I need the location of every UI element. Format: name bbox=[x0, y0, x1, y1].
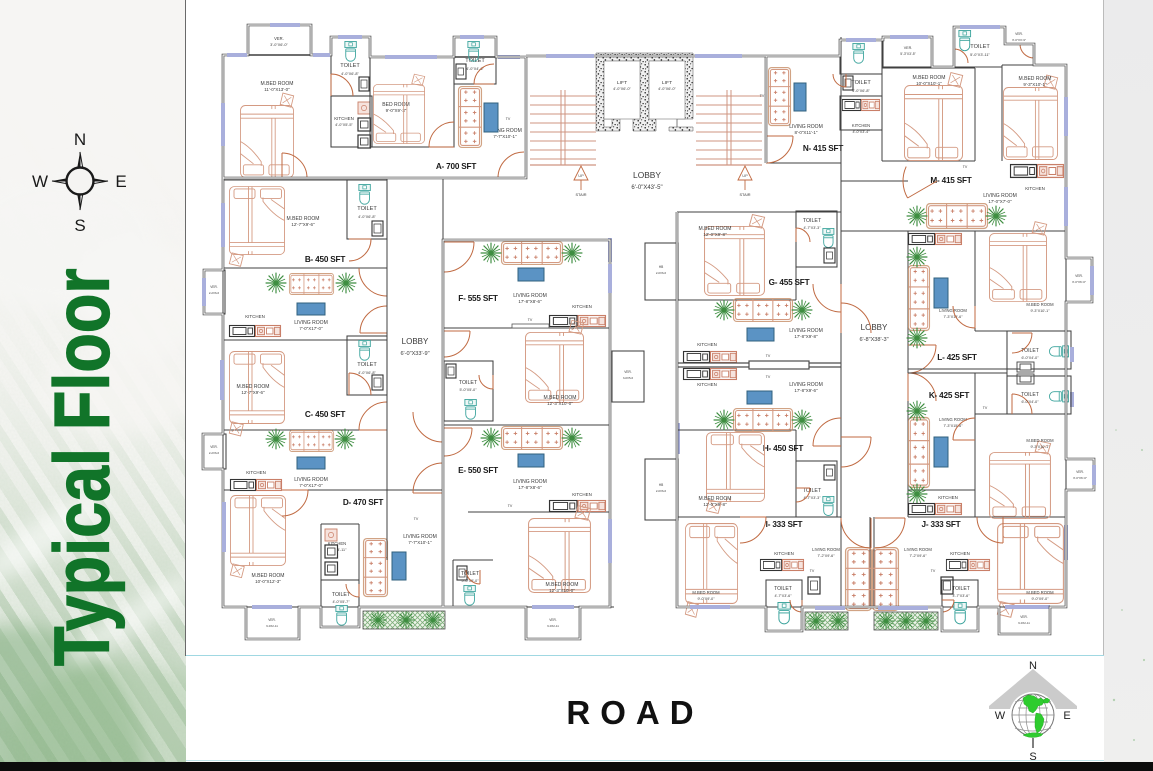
svg-text:LIVING ROOM: LIVING ROOM bbox=[904, 547, 932, 552]
svg-text:4'-7"X3'-6": 4'-7"X3'-6" bbox=[953, 594, 971, 598]
svg-text:VER.: VER. bbox=[624, 370, 632, 374]
svg-text:G- 455 SFT: G- 455 SFT bbox=[769, 278, 810, 287]
svg-text:KITCHEN: KITCHEN bbox=[852, 123, 870, 128]
svg-text:VER.: VER. bbox=[1015, 32, 1023, 36]
svg-text:LOBBY: LOBBY bbox=[402, 337, 429, 346]
svg-text:4'-0"X5'-7": 4'-0"X5'-7" bbox=[333, 600, 351, 604]
svg-text:STAIR: STAIR bbox=[740, 193, 751, 197]
svg-text:KITCHEN: KITCHEN bbox=[1025, 186, 1045, 191]
svg-text:12'-7"X9'-6": 12'-7"X9'-6" bbox=[291, 222, 315, 227]
svg-text:M.BED ROOM: M.BED ROOM bbox=[1026, 590, 1054, 595]
svg-text:UP: UP bbox=[742, 173, 748, 178]
svg-text:4'-0"X5'-5": 4'-0"X5'-5" bbox=[335, 123, 353, 127]
svg-text:17'-8"X8'-6": 17'-8"X8'-6" bbox=[518, 299, 542, 304]
svg-text:L- 425 SFT: L- 425 SFT bbox=[937, 353, 977, 362]
svg-text:2-2X6-6: 2-2X6-6 bbox=[209, 451, 220, 455]
svg-text:KITCHEN: KITCHEN bbox=[572, 304, 592, 309]
svg-text:D- 470 SFT: D- 470 SFT bbox=[343, 498, 384, 507]
svg-text:E: E bbox=[1063, 710, 1070, 722]
svg-text:VER.: VER. bbox=[1076, 470, 1084, 474]
svg-text:KITCHEN: KITCHEN bbox=[938, 495, 958, 500]
svg-text:LIVING ROOM: LIVING ROOM bbox=[812, 547, 840, 552]
svg-text:TV: TV bbox=[810, 569, 815, 573]
svg-text:17'-8"X8'-6": 17'-8"X8'-6" bbox=[518, 485, 542, 490]
svg-text:4'-7"X3'-6": 4'-7"X3'-6" bbox=[775, 594, 793, 598]
svg-text:TOILET: TOILET bbox=[1021, 392, 1039, 398]
svg-text:KITCHEN: KITCHEN bbox=[697, 382, 717, 387]
svg-text:10'-0"X10'-1": 10'-0"X10'-1" bbox=[916, 81, 942, 86]
svg-text:7'-3"X15'-6": 7'-3"X15'-6" bbox=[943, 424, 963, 428]
svg-text:9'-3"X10'-1": 9'-3"X10'-1" bbox=[1030, 309, 1050, 313]
svg-text:TOILET: TOILET bbox=[774, 586, 792, 592]
svg-text:VER.: VER. bbox=[549, 618, 557, 622]
svg-text:3'-0"X6'-0": 3'-0"X6'-0" bbox=[1072, 280, 1086, 284]
svg-text:E- 550 SFT: E- 550 SFT bbox=[458, 466, 498, 475]
svg-text:TOILET: TOILET bbox=[851, 80, 871, 86]
svg-text:M- 415 SFT: M- 415 SFT bbox=[930, 176, 971, 185]
svg-text:TV: TV bbox=[528, 318, 533, 322]
svg-text:Typical Floor: Typical Floor bbox=[39, 268, 126, 666]
svg-text:STAIR: STAIR bbox=[576, 193, 587, 197]
svg-text:B- 450 SFT: B- 450 SFT bbox=[305, 255, 346, 264]
svg-text:TOILET: TOILET bbox=[357, 206, 377, 212]
svg-text:9'-3"X10'-1": 9'-3"X10'-1" bbox=[1023, 82, 1047, 87]
svg-text:K- 425 SFT: K- 425 SFT bbox=[929, 391, 970, 400]
svg-text:TV: TV bbox=[508, 504, 513, 508]
svg-text:N- 415 SFT: N- 415 SFT bbox=[803, 144, 844, 153]
svg-text:9'-0"X9'-0": 9'-0"X9'-0" bbox=[698, 597, 716, 601]
svg-text:12'-0"X9'-8": 12'-0"X9'-8" bbox=[703, 232, 727, 237]
svg-text:TOILET: TOILET bbox=[970, 44, 990, 50]
svg-text:2-0X6-6: 2-0X6-6 bbox=[656, 271, 667, 275]
svg-text:8'-0"X11'-1": 8'-0"X11'-1" bbox=[795, 130, 818, 135]
svg-text:4'-0"X3'-4": 4'-0"X3'-4" bbox=[853, 130, 871, 134]
svg-text:KITCHEN: KITCHEN bbox=[950, 551, 970, 556]
svg-text:7'-0"X17'-0": 7'-0"X17'-0" bbox=[299, 483, 323, 488]
svg-text:4'-0"X6'-0": 4'-0"X6'-0" bbox=[658, 87, 676, 91]
svg-text:3'-0"X6'-0": 3'-0"X6'-0" bbox=[1073, 476, 1087, 480]
svg-text:11'-0"X13'-0": 11'-0"X13'-0" bbox=[264, 87, 290, 92]
svg-text:7'-7"X10'-1": 7'-7"X10'-1" bbox=[493, 134, 517, 139]
svg-text:KITCHEN: KITCHEN bbox=[245, 314, 265, 319]
svg-text:4'-0"X6'-0": 4'-0"X6'-0" bbox=[613, 87, 631, 91]
svg-text:C- 450 SFT: C- 450 SFT bbox=[305, 410, 346, 419]
svg-text:TOILET: TOILET bbox=[340, 63, 360, 69]
svg-text:4'-0"X6'-8": 4'-0"X6'-8" bbox=[341, 72, 359, 76]
svg-text:M.BED ROOM: M.BED ROOM bbox=[1026, 438, 1054, 443]
svg-text:17'-0"X7'-0": 17'-0"X7'-0" bbox=[988, 199, 1012, 204]
svg-text:TV: TV bbox=[983, 406, 988, 410]
svg-text:TOILET: TOILET bbox=[357, 362, 377, 368]
svg-text:17'-8"X9'-6": 17'-8"X9'-6" bbox=[794, 388, 818, 393]
svg-text:6'-0"X43'-5": 6'-0"X43'-5" bbox=[631, 185, 662, 191]
svg-text:12'-3"X10'-0": 12'-3"X10'-0" bbox=[549, 588, 575, 593]
svg-text:UP: UP bbox=[578, 173, 584, 178]
svg-text:KITCHEN: KITCHEN bbox=[334, 116, 354, 121]
svg-text:LOBBY: LOBBY bbox=[861, 323, 888, 332]
svg-text:VER.: VER. bbox=[1020, 615, 1028, 619]
svg-text:9'-3"X10'-1": 9'-3"X10'-1" bbox=[1030, 445, 1050, 449]
svg-text:12'-0"X9'-8": 12'-0"X9'-8" bbox=[703, 502, 727, 507]
svg-text:17'-8"X9'-8": 17'-8"X9'-8" bbox=[794, 334, 818, 339]
svg-text:F- 555 SFT: F- 555 SFT bbox=[458, 294, 498, 303]
svg-text:7'-7"X10'-1": 7'-7"X10'-1" bbox=[408, 540, 432, 545]
svg-text:HB: HB bbox=[659, 483, 663, 487]
svg-text:10'-0"X12'-3": 10'-0"X12'-3" bbox=[255, 579, 281, 584]
svg-text:6'-0"X4'-0": 6'-0"X4'-0" bbox=[1022, 356, 1040, 360]
svg-text:TV: TV bbox=[414, 517, 419, 521]
svg-text:KITCHEN: KITCHEN bbox=[246, 470, 266, 475]
svg-text:VER.: VER. bbox=[210, 445, 218, 449]
svg-text:TV: TV bbox=[963, 165, 968, 169]
svg-text:J- 333 SFT: J- 333 SFT bbox=[922, 520, 961, 529]
svg-text:6-0X2-11: 6-0X2-11 bbox=[266, 624, 278, 628]
svg-text:5'-3"X3'-5": 5'-3"X3'-5" bbox=[900, 52, 916, 56]
svg-text:LIFT: LIFT bbox=[617, 80, 627, 86]
svg-text:3'-0"X6'-0": 3'-0"X6'-0" bbox=[270, 43, 288, 47]
svg-text:TOILET: TOILET bbox=[803, 218, 822, 224]
svg-text:2-2X6-6: 2-2X6-6 bbox=[209, 291, 220, 295]
svg-text:9'-0"X9'-0": 9'-0"X9'-0" bbox=[1032, 597, 1050, 601]
svg-text:3-0X5-6: 3-0X5-6 bbox=[623, 376, 634, 380]
svg-text:5'-0"X5'-0": 5'-0"X5'-0" bbox=[460, 388, 478, 392]
svg-text:4'-0"X6'-8": 4'-0"X6'-8" bbox=[358, 215, 376, 219]
svg-text:VER.: VER. bbox=[904, 46, 913, 50]
svg-text:M.BED ROOM: M.BED ROOM bbox=[1026, 302, 1054, 307]
svg-text:5'-0"X3'-11": 5'-0"X3'-11" bbox=[970, 53, 990, 57]
svg-text:7'-2"X9'-6": 7'-2"X9'-6" bbox=[818, 554, 836, 558]
svg-text:TOILET: TOILET bbox=[952, 586, 970, 592]
svg-text:TV: TV bbox=[766, 354, 771, 358]
svg-text:3'-0"X3'-9": 3'-0"X3'-9" bbox=[1012, 38, 1026, 42]
svg-text:12'-3"X10'-0": 12'-3"X10'-0" bbox=[547, 401, 573, 406]
svg-text:6-0X2-11: 6-0X2-11 bbox=[547, 624, 559, 628]
svg-text:TV: TV bbox=[506, 117, 511, 121]
svg-text:LOBBY: LOBBY bbox=[633, 170, 661, 180]
svg-text:VER.: VER. bbox=[1075, 274, 1083, 278]
svg-text:TV: TV bbox=[931, 569, 936, 573]
svg-text:VER.: VER. bbox=[274, 36, 284, 41]
svg-text:HB: HB bbox=[659, 265, 663, 269]
svg-text:KITCHEN: KITCHEN bbox=[572, 492, 592, 497]
svg-text:TOILET: TOILET bbox=[332, 592, 351, 598]
svg-text:12'-7"X9'-6": 12'-7"X9'-6" bbox=[241, 390, 265, 395]
svg-text:6-0X2-11: 6-0X2-11 bbox=[1018, 621, 1030, 625]
svg-text:A- 700 SFT: A- 700 SFT bbox=[436, 162, 477, 171]
svg-text:2-0X6-6: 2-0X6-6 bbox=[656, 489, 667, 493]
svg-text:TOILET: TOILET bbox=[459, 380, 478, 386]
svg-text:VER.: VER. bbox=[268, 618, 276, 622]
svg-text:TOILET: TOILET bbox=[461, 571, 480, 577]
svg-text:H- 450 SFT: H- 450 SFT bbox=[763, 444, 804, 453]
svg-text:LIFT: LIFT bbox=[662, 80, 672, 86]
svg-text:KITCHEN: KITCHEN bbox=[774, 551, 794, 556]
svg-text:W: W bbox=[995, 710, 1006, 722]
svg-text:TV: TV bbox=[766, 375, 771, 379]
svg-text:I- 333 SFT: I- 333 SFT bbox=[766, 520, 803, 529]
svg-text:4'-0"X6'-8": 4'-0"X6'-8" bbox=[852, 89, 870, 93]
svg-text:7'-3"X15'-6": 7'-3"X15'-6" bbox=[943, 315, 963, 319]
svg-text:TV: TV bbox=[760, 94, 765, 98]
svg-text:KITCHEN: KITCHEN bbox=[697, 342, 717, 347]
svg-text:4'-7"X3'-3": 4'-7"X3'-3" bbox=[804, 226, 822, 230]
svg-text:7'-2"X9'-6": 7'-2"X9'-6" bbox=[910, 554, 928, 558]
svg-text:M.BED ROOM: M.BED ROOM bbox=[692, 590, 720, 595]
svg-text:6'-8"X38'-3": 6'-8"X38'-3" bbox=[859, 337, 888, 343]
svg-text:VER.: VER. bbox=[210, 285, 218, 289]
svg-text:6'-0"X4'-0": 6'-0"X4'-0" bbox=[1022, 400, 1040, 404]
svg-text:7'-0"X17'-0": 7'-0"X17'-0" bbox=[299, 326, 323, 331]
svg-text:4'-0"X6'-8": 4'-0"X6'-8" bbox=[358, 371, 376, 375]
svg-text:TOILET: TOILET bbox=[803, 488, 822, 494]
svg-text:6'-0"X33'-9": 6'-0"X33'-9" bbox=[400, 351, 429, 357]
